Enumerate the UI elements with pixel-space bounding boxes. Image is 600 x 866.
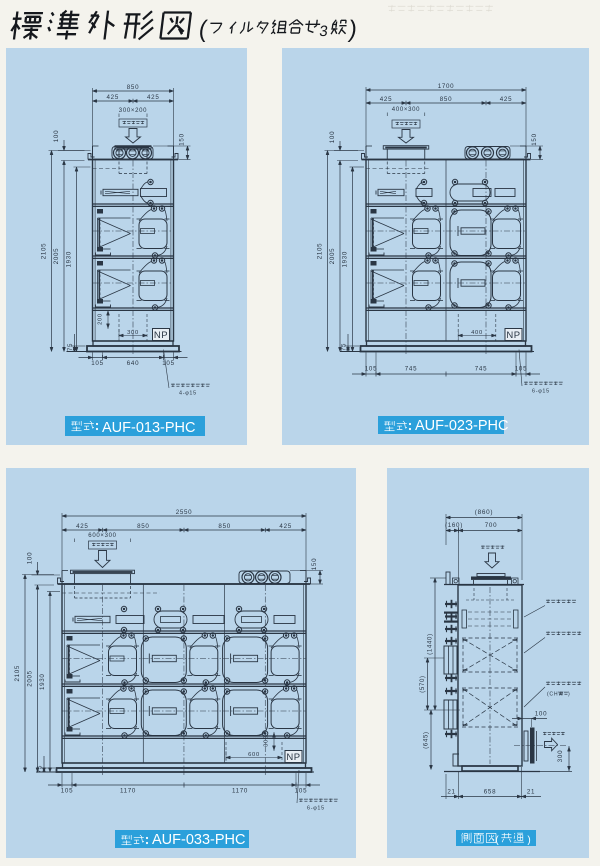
svg-text:425: 425 <box>279 523 291 530</box>
svg-text:105: 105 <box>61 788 73 795</box>
svg-text:400: 400 <box>471 330 483 336</box>
svg-text:850: 850 <box>440 96 452 103</box>
svg-text:NP: NP <box>154 330 168 341</box>
svg-text:850: 850 <box>137 523 149 530</box>
svg-text:2105: 2105 <box>317 243 324 260</box>
svg-text:AUF-023-PHC: AUF-023-PHC <box>415 418 508 434</box>
svg-text:105: 105 <box>162 360 174 367</box>
svg-text:300: 300 <box>264 735 270 747</box>
svg-text:150: 150 <box>531 133 538 145</box>
svg-text:): ) <box>568 692 570 698</box>
svg-text:AUF-033-PHC: AUF-033-PHC <box>152 832 245 848</box>
svg-text:850: 850 <box>218 523 230 530</box>
svg-text:150: 150 <box>179 133 186 145</box>
svg-text:AUF-013-PHC: AUF-013-PHC <box>102 420 195 436</box>
svg-text:6-φ15: 6-φ15 <box>532 389 550 395</box>
svg-text:3: 3 <box>318 23 328 40</box>
svg-text:700: 700 <box>485 522 497 529</box>
svg-text:300: 300 <box>127 330 139 336</box>
svg-text:2105: 2105 <box>14 665 21 682</box>
svg-text:200: 200 <box>98 313 104 325</box>
svg-text:6-φ15: 6-φ15 <box>307 806 325 812</box>
svg-text:NP: NP <box>506 330 520 341</box>
svg-text:1700: 1700 <box>438 83 455 90</box>
svg-text:21: 21 <box>527 789 535 796</box>
svg-text:1930: 1930 <box>66 251 73 268</box>
svg-text:2550: 2550 <box>176 509 193 516</box>
svg-text:NP: NP <box>286 752 300 763</box>
svg-text:400×300: 400×300 <box>392 107 420 113</box>
svg-text:100: 100 <box>329 131 336 143</box>
svg-text:2005: 2005 <box>329 248 336 265</box>
svg-text:600: 600 <box>248 752 260 758</box>
svg-text:425: 425 <box>500 96 512 103</box>
svg-text:745: 745 <box>475 366 487 373</box>
svg-text:150: 150 <box>311 558 318 570</box>
svg-text:105: 105 <box>91 360 103 367</box>
svg-text:100: 100 <box>535 711 547 718</box>
svg-text:2005: 2005 <box>53 248 60 265</box>
svg-text:105: 105 <box>295 788 307 795</box>
svg-text:2105: 2105 <box>41 243 48 260</box>
svg-text:425: 425 <box>380 96 392 103</box>
svg-text:425: 425 <box>107 94 119 101</box>
svg-text:300: 300 <box>557 750 564 762</box>
svg-text:): ) <box>527 835 530 846</box>
svg-text:100: 100 <box>53 130 60 142</box>
svg-text:2005: 2005 <box>27 670 34 687</box>
svg-text:425: 425 <box>147 94 159 101</box>
svg-text:(1440): (1440) <box>428 633 434 655</box>
svg-text:100: 100 <box>27 552 34 564</box>
svg-text:600×300: 600×300 <box>88 533 116 539</box>
svg-text:300×200: 300×200 <box>119 108 147 114</box>
svg-text:1930: 1930 <box>39 673 46 690</box>
svg-text:1930: 1930 <box>342 251 349 268</box>
svg-text:640: 640 <box>127 360 139 367</box>
svg-text:425: 425 <box>76 523 88 530</box>
svg-text:658: 658 <box>484 789 496 796</box>
svg-text:(160): (160) <box>445 522 463 529</box>
svg-text:(645): (645) <box>424 731 430 749</box>
svg-text:745: 745 <box>405 366 417 373</box>
svg-text:21: 21 <box>447 789 455 796</box>
svg-text:1170: 1170 <box>232 788 248 795</box>
svg-text:1170: 1170 <box>120 788 136 795</box>
svg-text:105: 105 <box>365 366 377 373</box>
svg-text:850: 850 <box>127 84 139 91</box>
svg-text:(: ( <box>197 16 208 43</box>
svg-text:(570): (570) <box>420 675 426 693</box>
svg-text:): ) <box>347 16 358 43</box>
svg-text:4-φ15: 4-φ15 <box>179 391 197 397</box>
svg-text:(860): (860) <box>475 509 493 516</box>
